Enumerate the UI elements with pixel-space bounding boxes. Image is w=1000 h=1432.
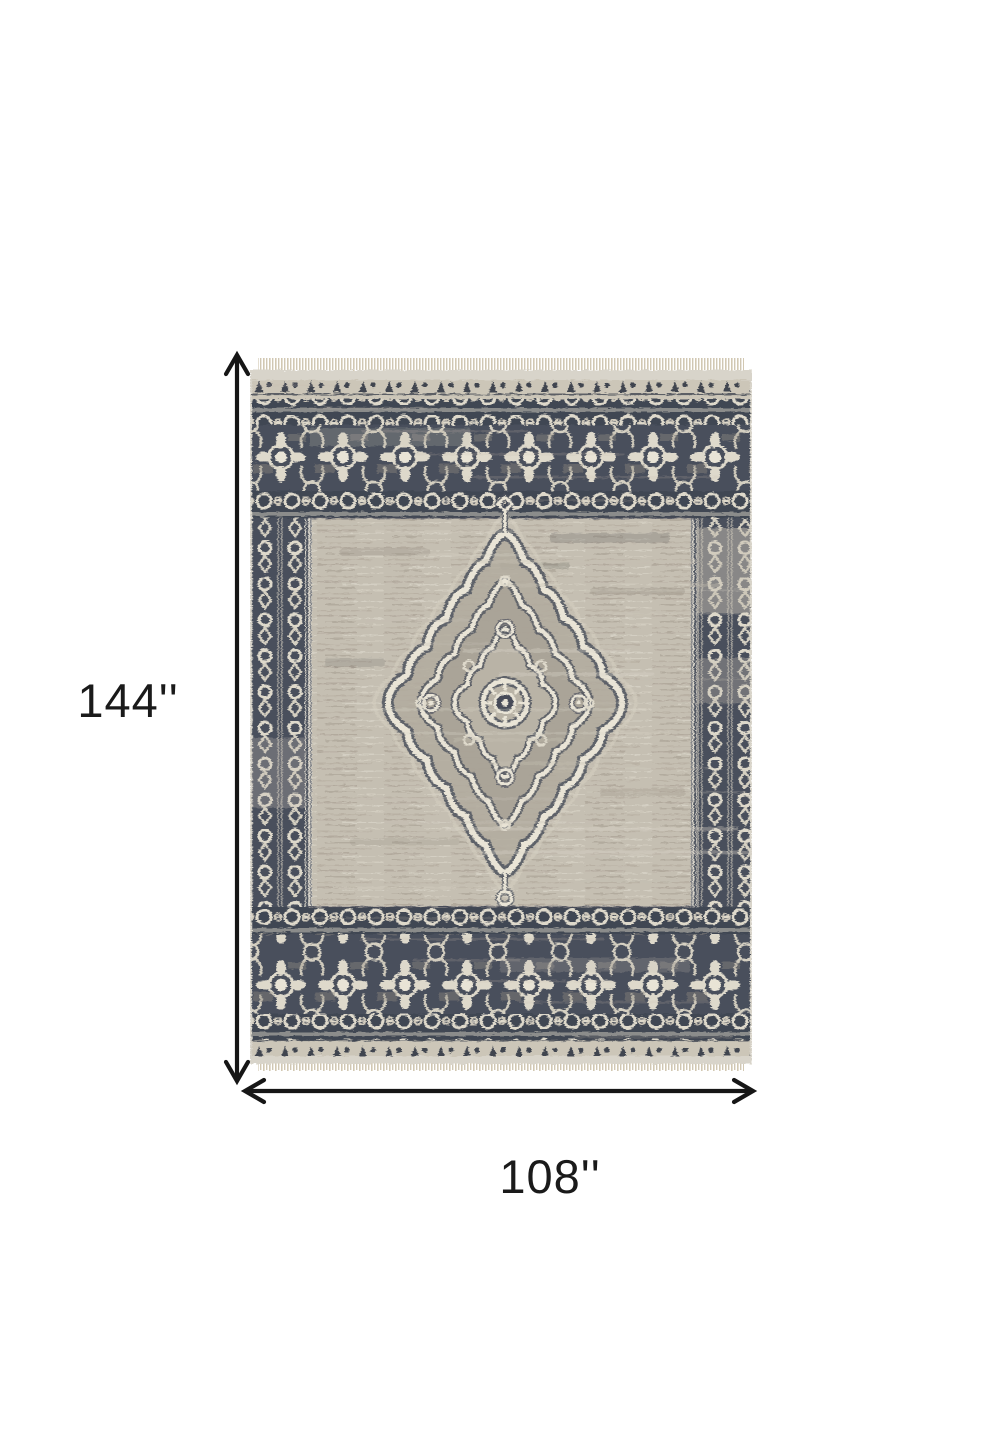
wear-streak xyxy=(402,643,496,646)
wear-streak xyxy=(309,407,432,409)
wear-streak xyxy=(357,708,646,711)
rug-border-bottom xyxy=(252,907,750,1064)
rug-body xyxy=(250,370,752,1064)
arrowhead-left-icon xyxy=(245,1080,264,1102)
wear-streak xyxy=(362,430,528,432)
width-dimension-arrow xyxy=(245,1080,753,1102)
wear-streak xyxy=(569,590,752,592)
wear-streak xyxy=(375,530,538,533)
wear-streak xyxy=(490,762,588,766)
wear-streak xyxy=(348,797,580,800)
wear-streak xyxy=(360,938,604,940)
wear-streak xyxy=(256,384,336,386)
arrowhead-right-icon xyxy=(734,1080,753,1102)
wear-streak xyxy=(521,499,636,501)
wear-streak xyxy=(578,880,680,882)
wear-streak xyxy=(415,453,624,455)
wear-streak xyxy=(551,768,722,770)
wear-streak xyxy=(413,959,520,961)
rug-fringe-top xyxy=(258,358,744,371)
wear-streak xyxy=(542,857,656,859)
wear-streak xyxy=(560,679,752,681)
wear-streak xyxy=(508,583,720,587)
medallion-rosette xyxy=(481,679,529,727)
wear-streak xyxy=(366,619,472,622)
wear-streak xyxy=(466,980,616,982)
arrowhead-down-icon xyxy=(226,1062,248,1081)
wear-streak xyxy=(519,1001,712,1003)
wear-streak xyxy=(339,887,514,890)
wear-streak xyxy=(393,732,670,735)
wear-streak xyxy=(463,649,630,653)
wear-streak xyxy=(587,791,746,793)
wear-streak xyxy=(596,702,752,704)
width-dimension-label: 108'' xyxy=(470,1150,630,1204)
rug-border-left xyxy=(252,518,312,907)
wear-streak xyxy=(445,827,738,831)
wear-streak xyxy=(307,917,508,919)
wear-streak xyxy=(605,613,752,615)
wear-streak xyxy=(454,738,564,742)
wear-streak xyxy=(499,673,654,677)
wear-streak xyxy=(314,524,404,526)
wear-streak xyxy=(411,554,562,557)
wear-streak xyxy=(574,1036,732,1038)
wear-streak xyxy=(481,851,752,855)
wear-streak xyxy=(472,560,696,564)
rug-image xyxy=(250,358,752,1071)
arrowhead-up-icon xyxy=(226,355,248,374)
wear-streak xyxy=(384,821,604,824)
height-dimension-label: 144'' xyxy=(48,674,208,728)
height-dimension-arrow xyxy=(226,355,248,1081)
wear-streak xyxy=(468,476,720,478)
dimension-diagram: 144'' 108'' xyxy=(0,0,1000,1432)
